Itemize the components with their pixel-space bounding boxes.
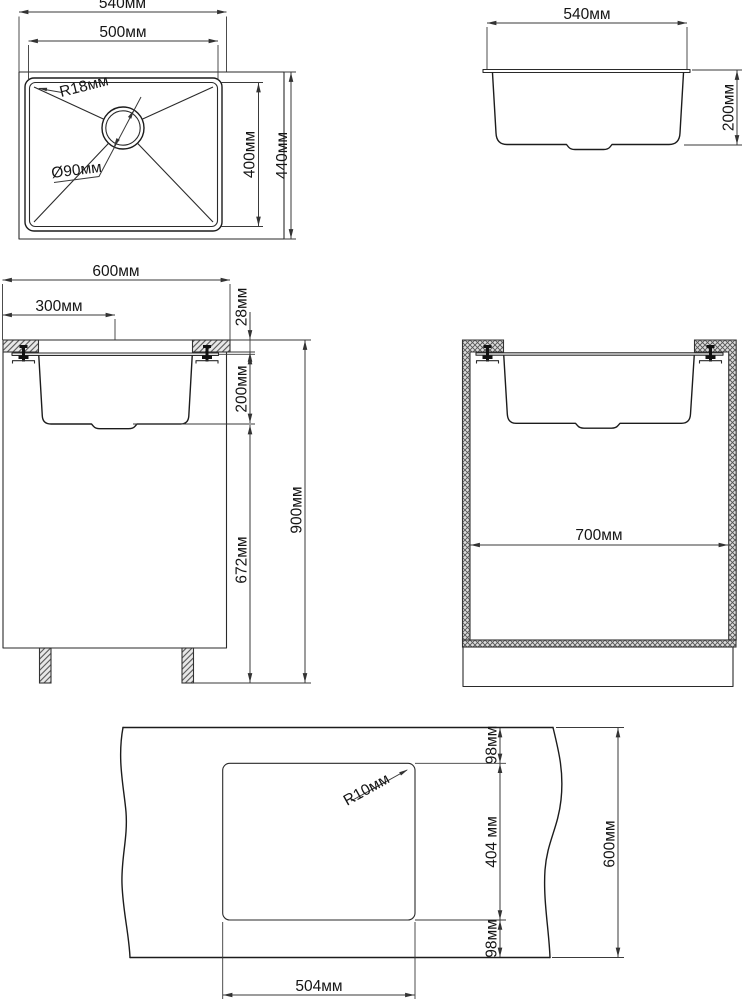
cutout-depth-label: 404 мм: [484, 816, 501, 867]
margin-back-label: 98мм: [484, 919, 501, 958]
sink-rim-profile: [483, 70, 690, 73]
sink-rim-flange: [476, 353, 723, 355]
cabinet-depth-label: 600мм: [92, 263, 139, 280]
center-offset-label: 300мм: [35, 298, 82, 315]
top-view-bowl-depth-label: 400мм: [242, 131, 259, 178]
bowl-depth-label: 200мм: [234, 365, 251, 412]
top-view-overall-width-label: 540мм: [99, 0, 146, 12]
cabinet-leg-right: [182, 648, 194, 683]
cabinet-leg-left: [40, 648, 52, 683]
floor-to-bowl-label: 672мм: [234, 536, 251, 583]
countertop-right-block: [193, 340, 231, 352]
worktop-height-label: 900мм: [289, 486, 306, 533]
side-view-height-label: 200мм: [721, 84, 738, 131]
countertop-thickness-label: 28мм: [234, 288, 251, 327]
sink-technical-drawing: 540мм 500мм R18мм Ø90мм 400мм 440мм 540м…: [0, 0, 744, 1000]
cabinet-bottom-panel: [463, 640, 737, 647]
countertop-depth-label: 600мм: [602, 820, 619, 867]
margin-front-label: 98мм: [484, 726, 501, 765]
top-view-bowl-width-label: 500мм: [99, 24, 146, 41]
canvas-background: [0, 0, 744, 1000]
inner-width-label: 700мм: [575, 527, 622, 544]
sink-rim-flange: [12, 353, 219, 355]
side-view-width-label: 540мм: [563, 6, 610, 23]
technical-drawing-page: 540мм 500мм R18мм Ø90мм 400мм 440мм 540м…: [0, 0, 744, 1000]
cutout-width-label: 504мм: [295, 978, 342, 995]
top-view-overall-depth-label: 440мм: [274, 132, 291, 179]
